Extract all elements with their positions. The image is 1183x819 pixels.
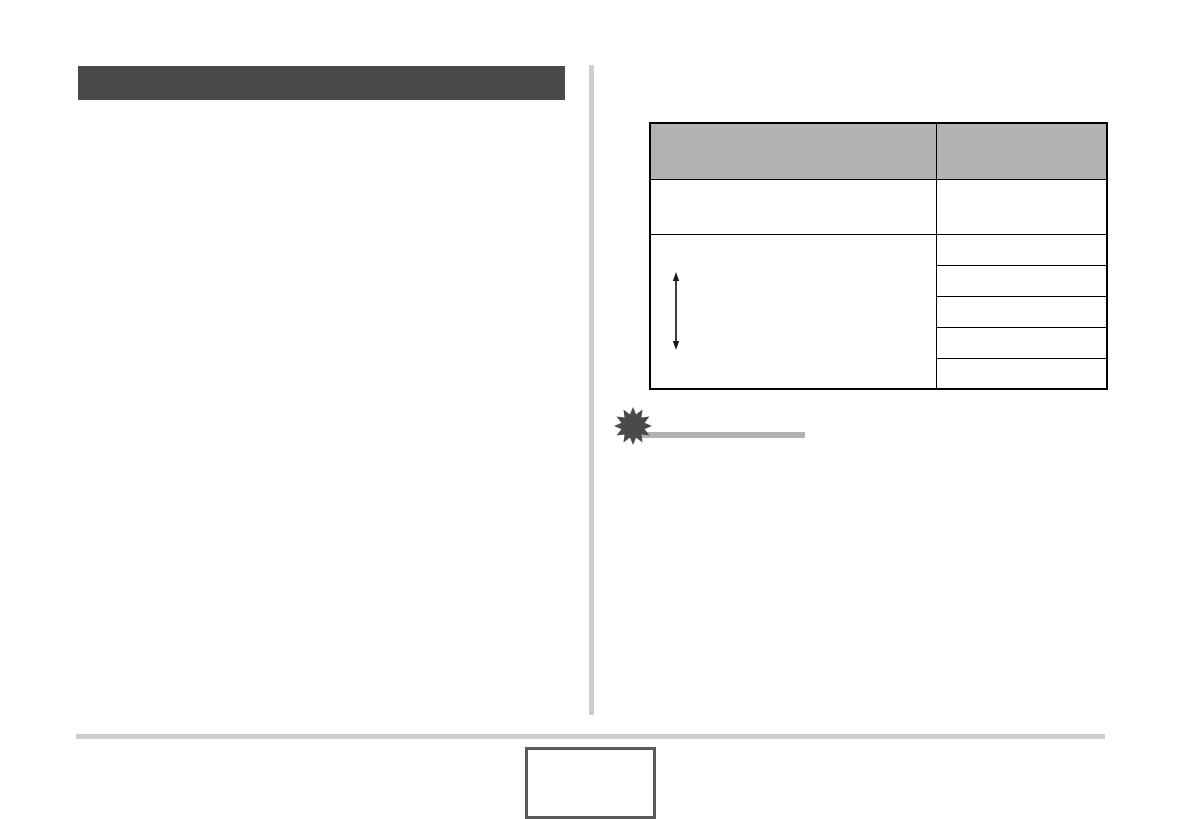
table-row [650, 179, 1107, 234]
table-header-cell-left [650, 123, 936, 179]
column-divider [589, 65, 594, 715]
vertical-double-arrow-icon [669, 272, 683, 350]
starburst-icon [613, 406, 653, 446]
section-header-bar [78, 66, 565, 100]
table-header-cell-right [936, 123, 1107, 179]
manual-page [0, 0, 1183, 800]
page-number-box [525, 747, 656, 819]
table-cell-range [650, 234, 936, 389]
table-row [650, 234, 1107, 265]
section-header-label [78, 73, 88, 92]
table-cell [936, 327, 1107, 358]
spec-table [649, 122, 1108, 390]
table-header-row [650, 123, 1107, 179]
table-cell [936, 179, 1107, 234]
table-cell [936, 296, 1107, 327]
table-cell [936, 265, 1107, 296]
footer-rule [76, 734, 1105, 739]
important-heading-rule [641, 432, 805, 438]
table-cell [936, 234, 1107, 265]
table-cell [650, 179, 936, 234]
table-cell [936, 358, 1107, 389]
